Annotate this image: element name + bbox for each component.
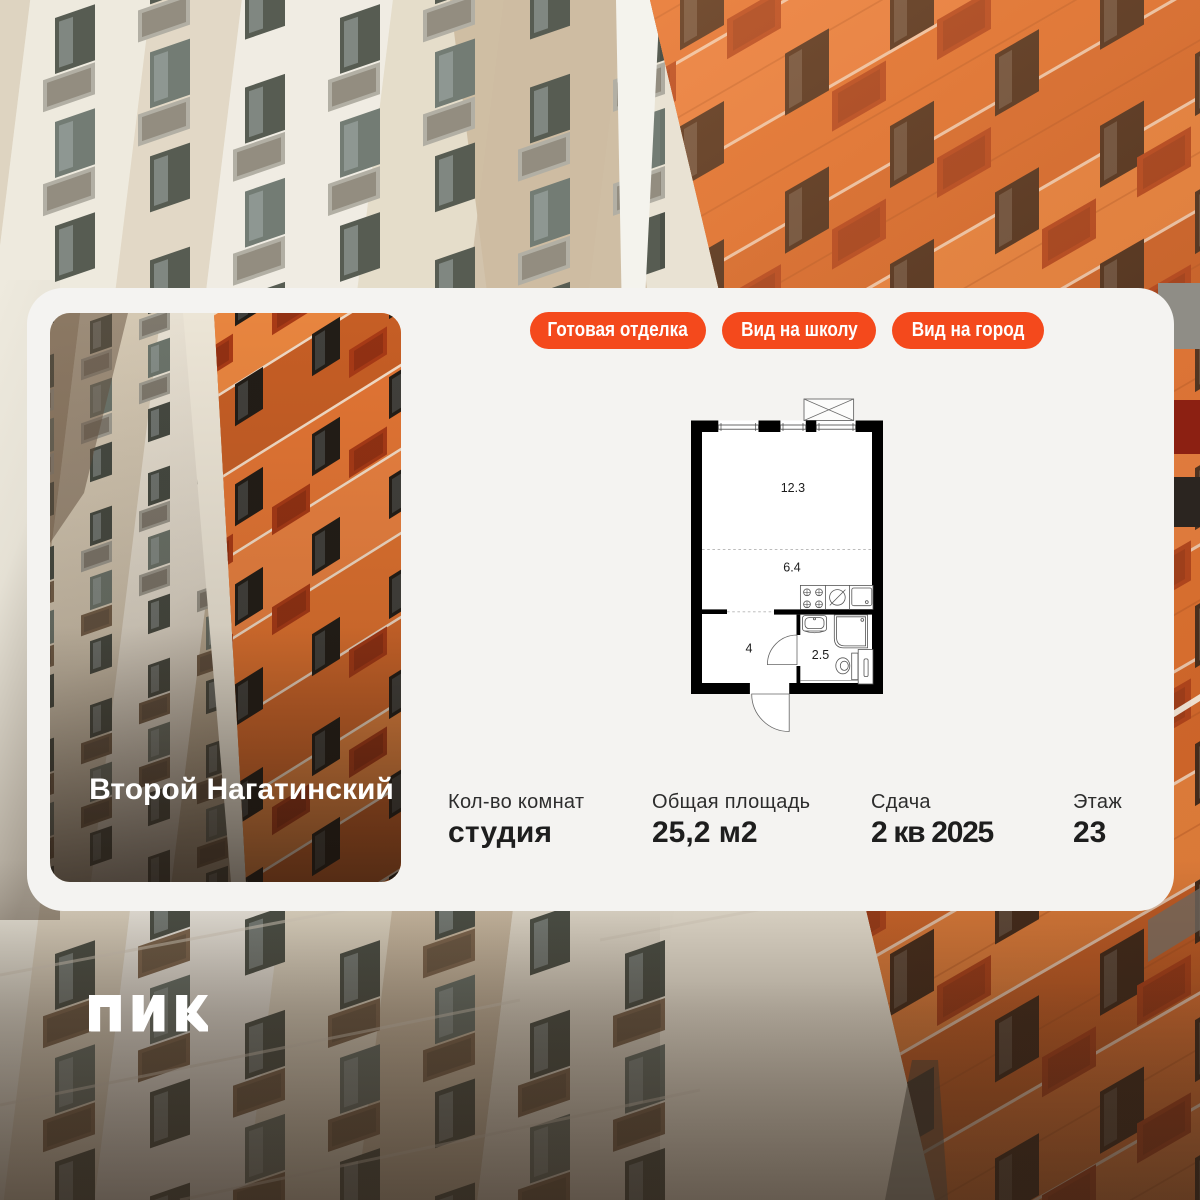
svg-text:2.5: 2.5: [812, 648, 829, 662]
svg-text:12.3: 12.3: [781, 481, 805, 495]
svg-text:4: 4: [746, 642, 753, 656]
svg-text:6.4: 6.4: [783, 561, 800, 575]
